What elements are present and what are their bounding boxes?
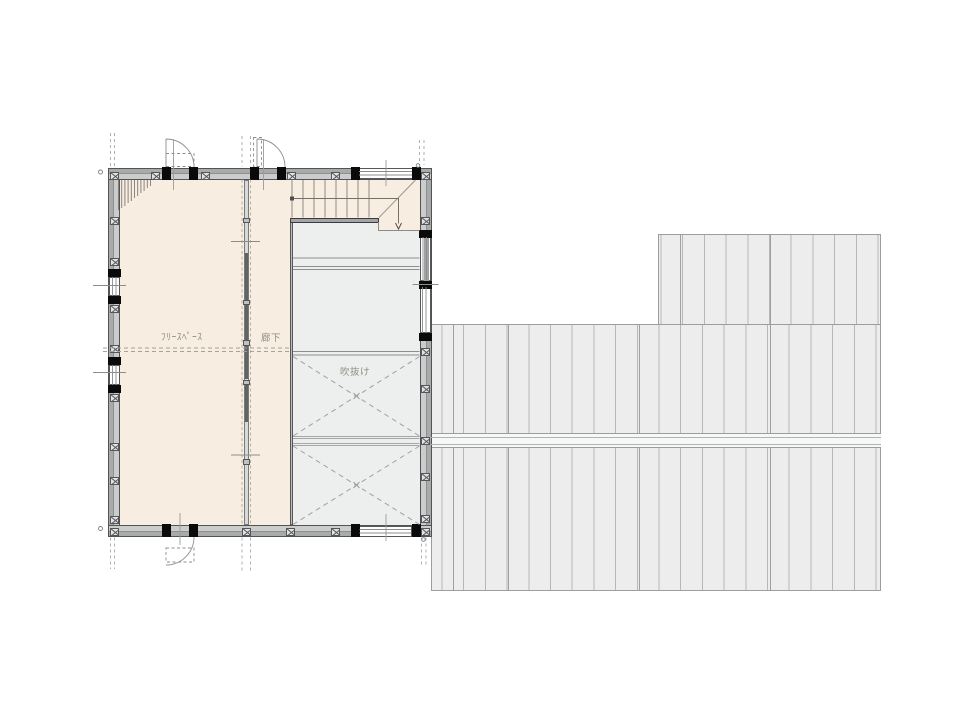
grid-datum-circles: [99, 164, 426, 542]
linework-overlay: [0, 0, 960, 720]
roof-ridge-lines: [431, 438, 881, 445]
hatch-lines: [119, 180, 151, 210]
room-label-void: 吹抜け: [340, 364, 370, 378]
stair-treads: [292, 180, 420, 231]
floor-plan-canvas: ﾌﾘｰｽﾍﾟｰｽ 廊下 吹抜け: [0, 0, 960, 720]
grid-line-partition: [242, 180, 251, 526]
stair-down-arrow: [396, 223, 402, 229]
void-beam-lines: [293, 258, 420, 446]
void-x-pattern: [293, 357, 420, 525]
window-frame-lines: [113, 172, 427, 534]
stair-walk-line: [290, 197, 402, 230]
room-dashed-line: [103, 348, 291, 352]
void-x-center-marks: [354, 393, 360, 488]
room-label-corridor: 廊下: [261, 330, 281, 344]
room-label-free-space: ﾌﾘｰｽﾍﾟｰｽ: [161, 329, 203, 343]
